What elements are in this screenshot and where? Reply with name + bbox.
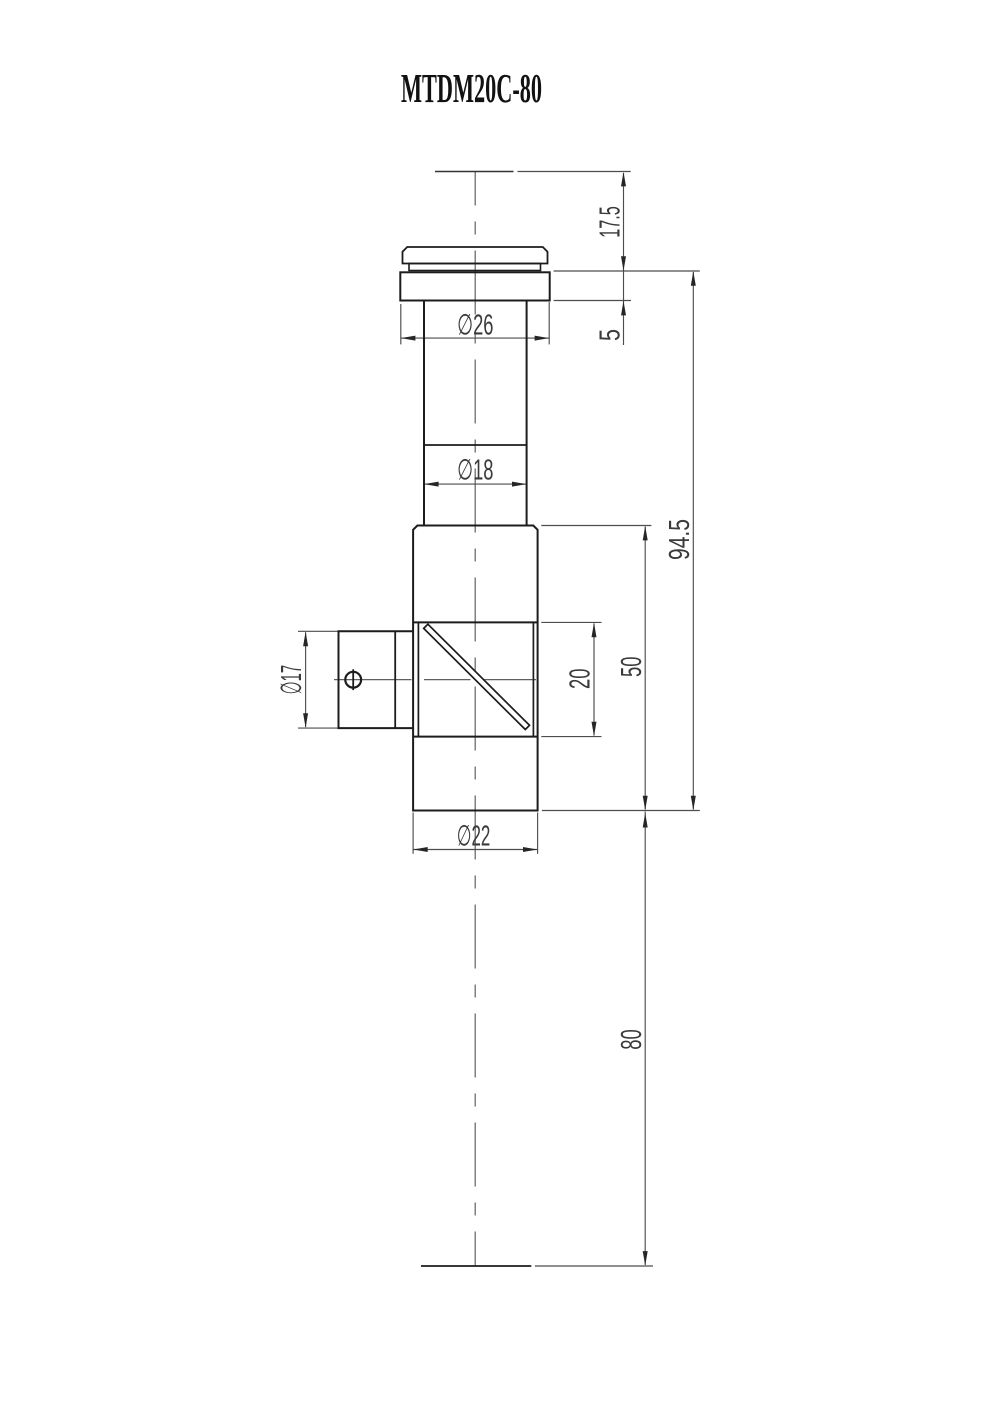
svg-text:∅18: ∅18 xyxy=(457,455,493,487)
svg-text:∅22: ∅22 xyxy=(457,821,491,853)
svg-text:MTDM20C-80: MTDM20C-80 xyxy=(401,65,542,111)
svg-text:17.5: 17.5 xyxy=(595,206,627,238)
svg-text:80: 80 xyxy=(616,1029,648,1050)
svg-text:5: 5 xyxy=(595,329,627,341)
svg-text:∅26: ∅26 xyxy=(457,310,493,342)
svg-text:∅17: ∅17 xyxy=(276,665,308,695)
svg-text:94.5: 94.5 xyxy=(664,519,696,560)
svg-text:20: 20 xyxy=(565,668,597,689)
svg-text:50: 50 xyxy=(616,657,648,678)
